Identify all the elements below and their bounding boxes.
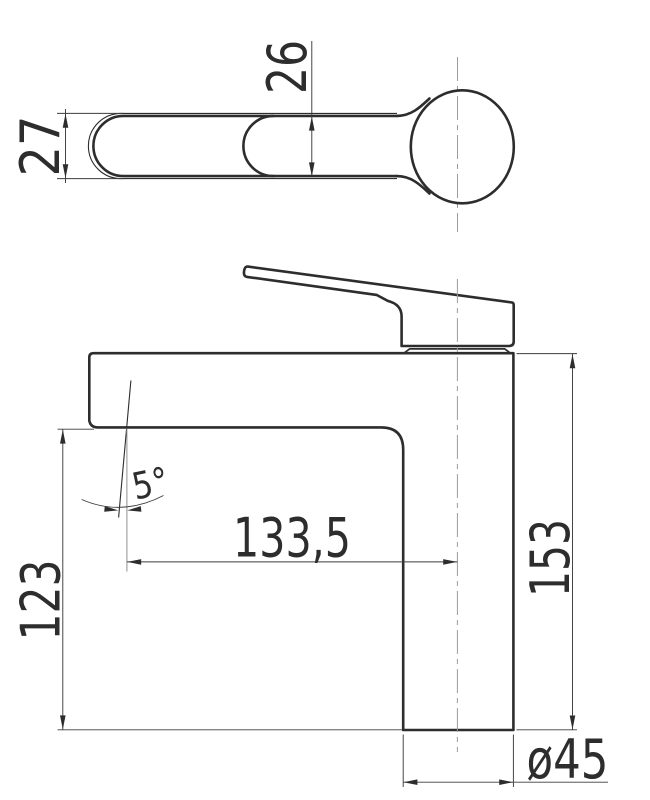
dim-spout-outlet-height: 123 xyxy=(10,429,403,730)
dim-label-123: 123 xyxy=(10,560,73,641)
arrow-right-icon xyxy=(499,779,513,785)
dim-label-153: 153 xyxy=(519,519,582,597)
dim-base-diameter: ø45 xyxy=(403,728,608,791)
arrow-left-icon xyxy=(127,559,141,565)
arrow-down-icon xyxy=(60,715,66,729)
arrow-up-icon xyxy=(60,430,66,444)
handle-inner-end-arc xyxy=(243,116,273,176)
dim-label-133-5: 133,5 xyxy=(233,507,351,570)
drawing-sheet: 27 26 5° xyxy=(0,0,650,800)
faucet-technical-drawing: 27 26 5° xyxy=(0,0,650,800)
handle-knob-circle xyxy=(411,90,514,203)
dim-label-diameter-45: ø45 xyxy=(527,728,609,791)
arrow-up-icon xyxy=(309,117,315,131)
arrow-left-icon xyxy=(403,779,417,785)
dim-label-5deg: 5° xyxy=(128,459,172,509)
lever-handle-outline xyxy=(244,267,514,346)
dim-handle-inner-width: 26 xyxy=(256,40,319,176)
dim-label-26: 26 xyxy=(256,40,319,94)
dim-total-height: 153 xyxy=(517,354,583,730)
arrow-up-icon xyxy=(570,354,576,368)
handle-inner-outline xyxy=(93,116,397,176)
arrow-down-icon xyxy=(309,162,315,176)
side-view-faucet: 5° 133,5 123 153 xyxy=(10,267,609,791)
dim-label-27: 27 xyxy=(9,116,72,177)
top-view-handle: 27 26 xyxy=(9,40,514,232)
